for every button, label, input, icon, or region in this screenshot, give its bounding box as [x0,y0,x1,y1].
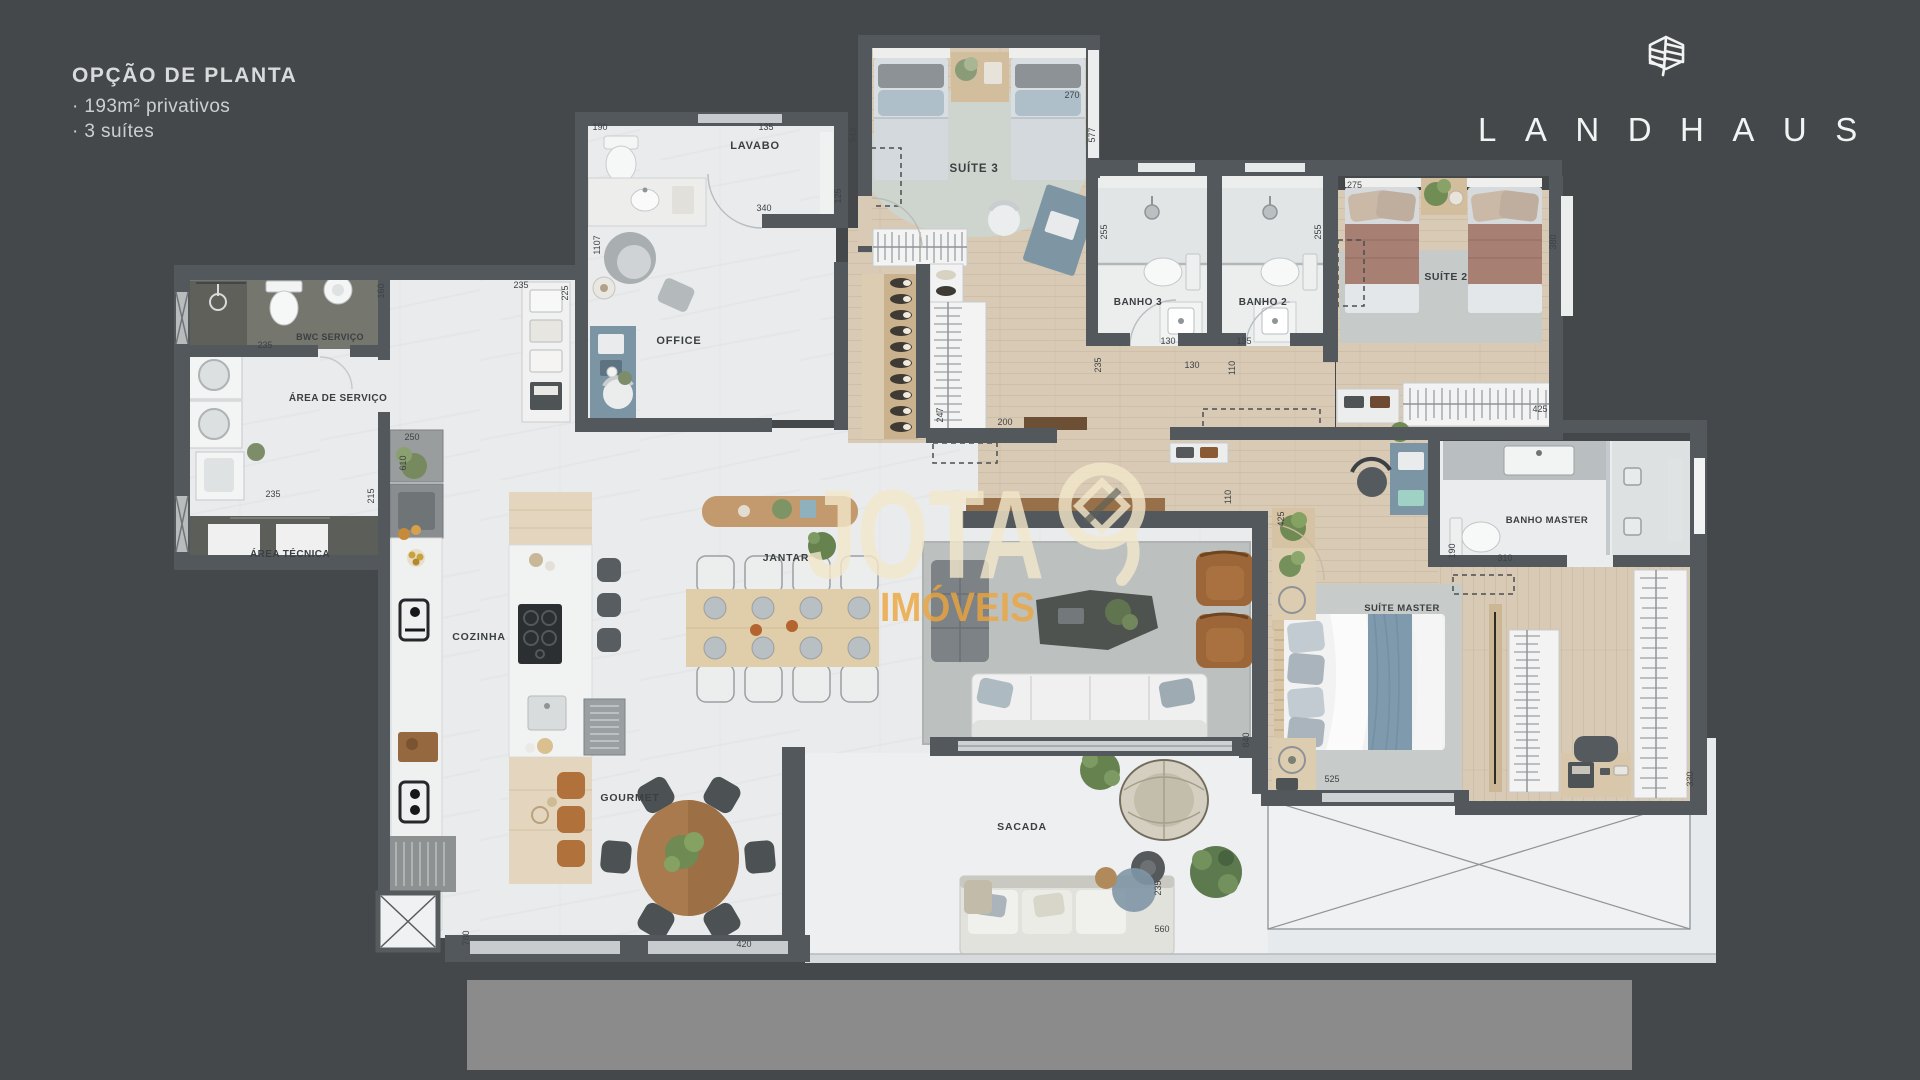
svg-text:425: 425 [1532,404,1547,414]
svg-text:310: 310 [1497,553,1512,563]
svg-text:130: 130 [1160,336,1175,346]
svg-text:330: 330 [1685,771,1695,786]
svg-text:130: 130 [1184,360,1199,370]
svg-text:JANTAR: JANTAR [763,552,810,564]
svg-text:780: 780 [461,930,471,945]
svg-text:BANHO 3: BANHO 3 [1114,297,1163,308]
svg-text:ÁREA TÉCNICA: ÁREA TÉCNICA [250,547,330,560]
svg-text:420: 420 [736,939,751,949]
svg-text:BANHO MASTER: BANHO MASTER [1506,515,1588,526]
svg-text:135: 135 [758,122,773,132]
svg-text:IMÓVEIS: IMÓVEIS [880,584,1035,630]
svg-text:110: 110 [1227,361,1237,375]
svg-text:235: 235 [265,489,280,499]
svg-text:BANHO 2: BANHO 2 [1239,297,1288,308]
svg-text:OFFICE: OFFICE [656,335,701,347]
svg-text:250: 250 [404,432,419,442]
svg-text:380: 380 [1548,234,1558,249]
svg-text:1275: 1275 [1342,180,1362,190]
svg-text:235: 235 [1093,357,1103,372]
svg-text:425: 425 [1276,511,1286,526]
svg-text:215: 215 [366,488,376,503]
svg-text:270: 270 [1064,90,1079,100]
svg-text:942: 942 [848,127,858,142]
svg-text:560: 560 [1154,924,1169,934]
svg-text:225: 225 [560,285,570,300]
svg-text:235: 235 [1153,880,1163,895]
svg-text:SACADA: SACADA [997,821,1047,833]
svg-text:LAVABO: LAVABO [730,140,780,152]
svg-text:125: 125 [833,188,843,203]
svg-text:160: 160 [376,283,386,298]
svg-text:190: 190 [1447,543,1457,558]
svg-text:235: 235 [257,340,272,350]
svg-text:190: 190 [592,122,607,132]
svg-text:255: 255 [1099,224,1109,239]
svg-text:135: 135 [1236,336,1251,346]
svg-text:1107: 1107 [592,235,602,254]
svg-text:340: 340 [756,203,771,213]
svg-text:110: 110 [1223,490,1233,504]
svg-text:255: 255 [1313,224,1323,239]
svg-text:840: 840 [1241,732,1251,747]
svg-text:GOURMET: GOURMET [600,792,659,804]
svg-text:577: 577 [1087,127,1097,142]
svg-text:OPÇÃO DE PLANTA: OPÇÃO DE PLANTA [72,64,297,87]
svg-text:COZINHA: COZINHA [452,631,505,643]
svg-text:· 3 suítes: · 3 suítes [72,121,154,142]
svg-text:· 193m² privativos: · 193m² privativos [72,96,230,117]
svg-text:BWC SERVIÇO: BWC SERVIÇO [296,332,364,342]
svg-text:ÁREA DE SERVIÇO: ÁREA DE SERVIÇO [289,391,387,404]
svg-text:SUÍTE MASTER: SUÍTE MASTER [1364,603,1440,614]
svg-text:610: 610 [398,455,408,470]
svg-text:SUÍTE 2: SUÍTE 2 [1424,270,1467,283]
svg-text:235: 235 [513,280,528,290]
svg-text:SUÍTE 3: SUÍTE 3 [949,162,998,175]
svg-text:247: 247 [935,407,945,422]
svg-text:LANDHAUS: LANDHAUS [1478,111,1886,148]
svg-text:200: 200 [997,417,1012,427]
svg-text:525: 525 [1324,774,1339,784]
